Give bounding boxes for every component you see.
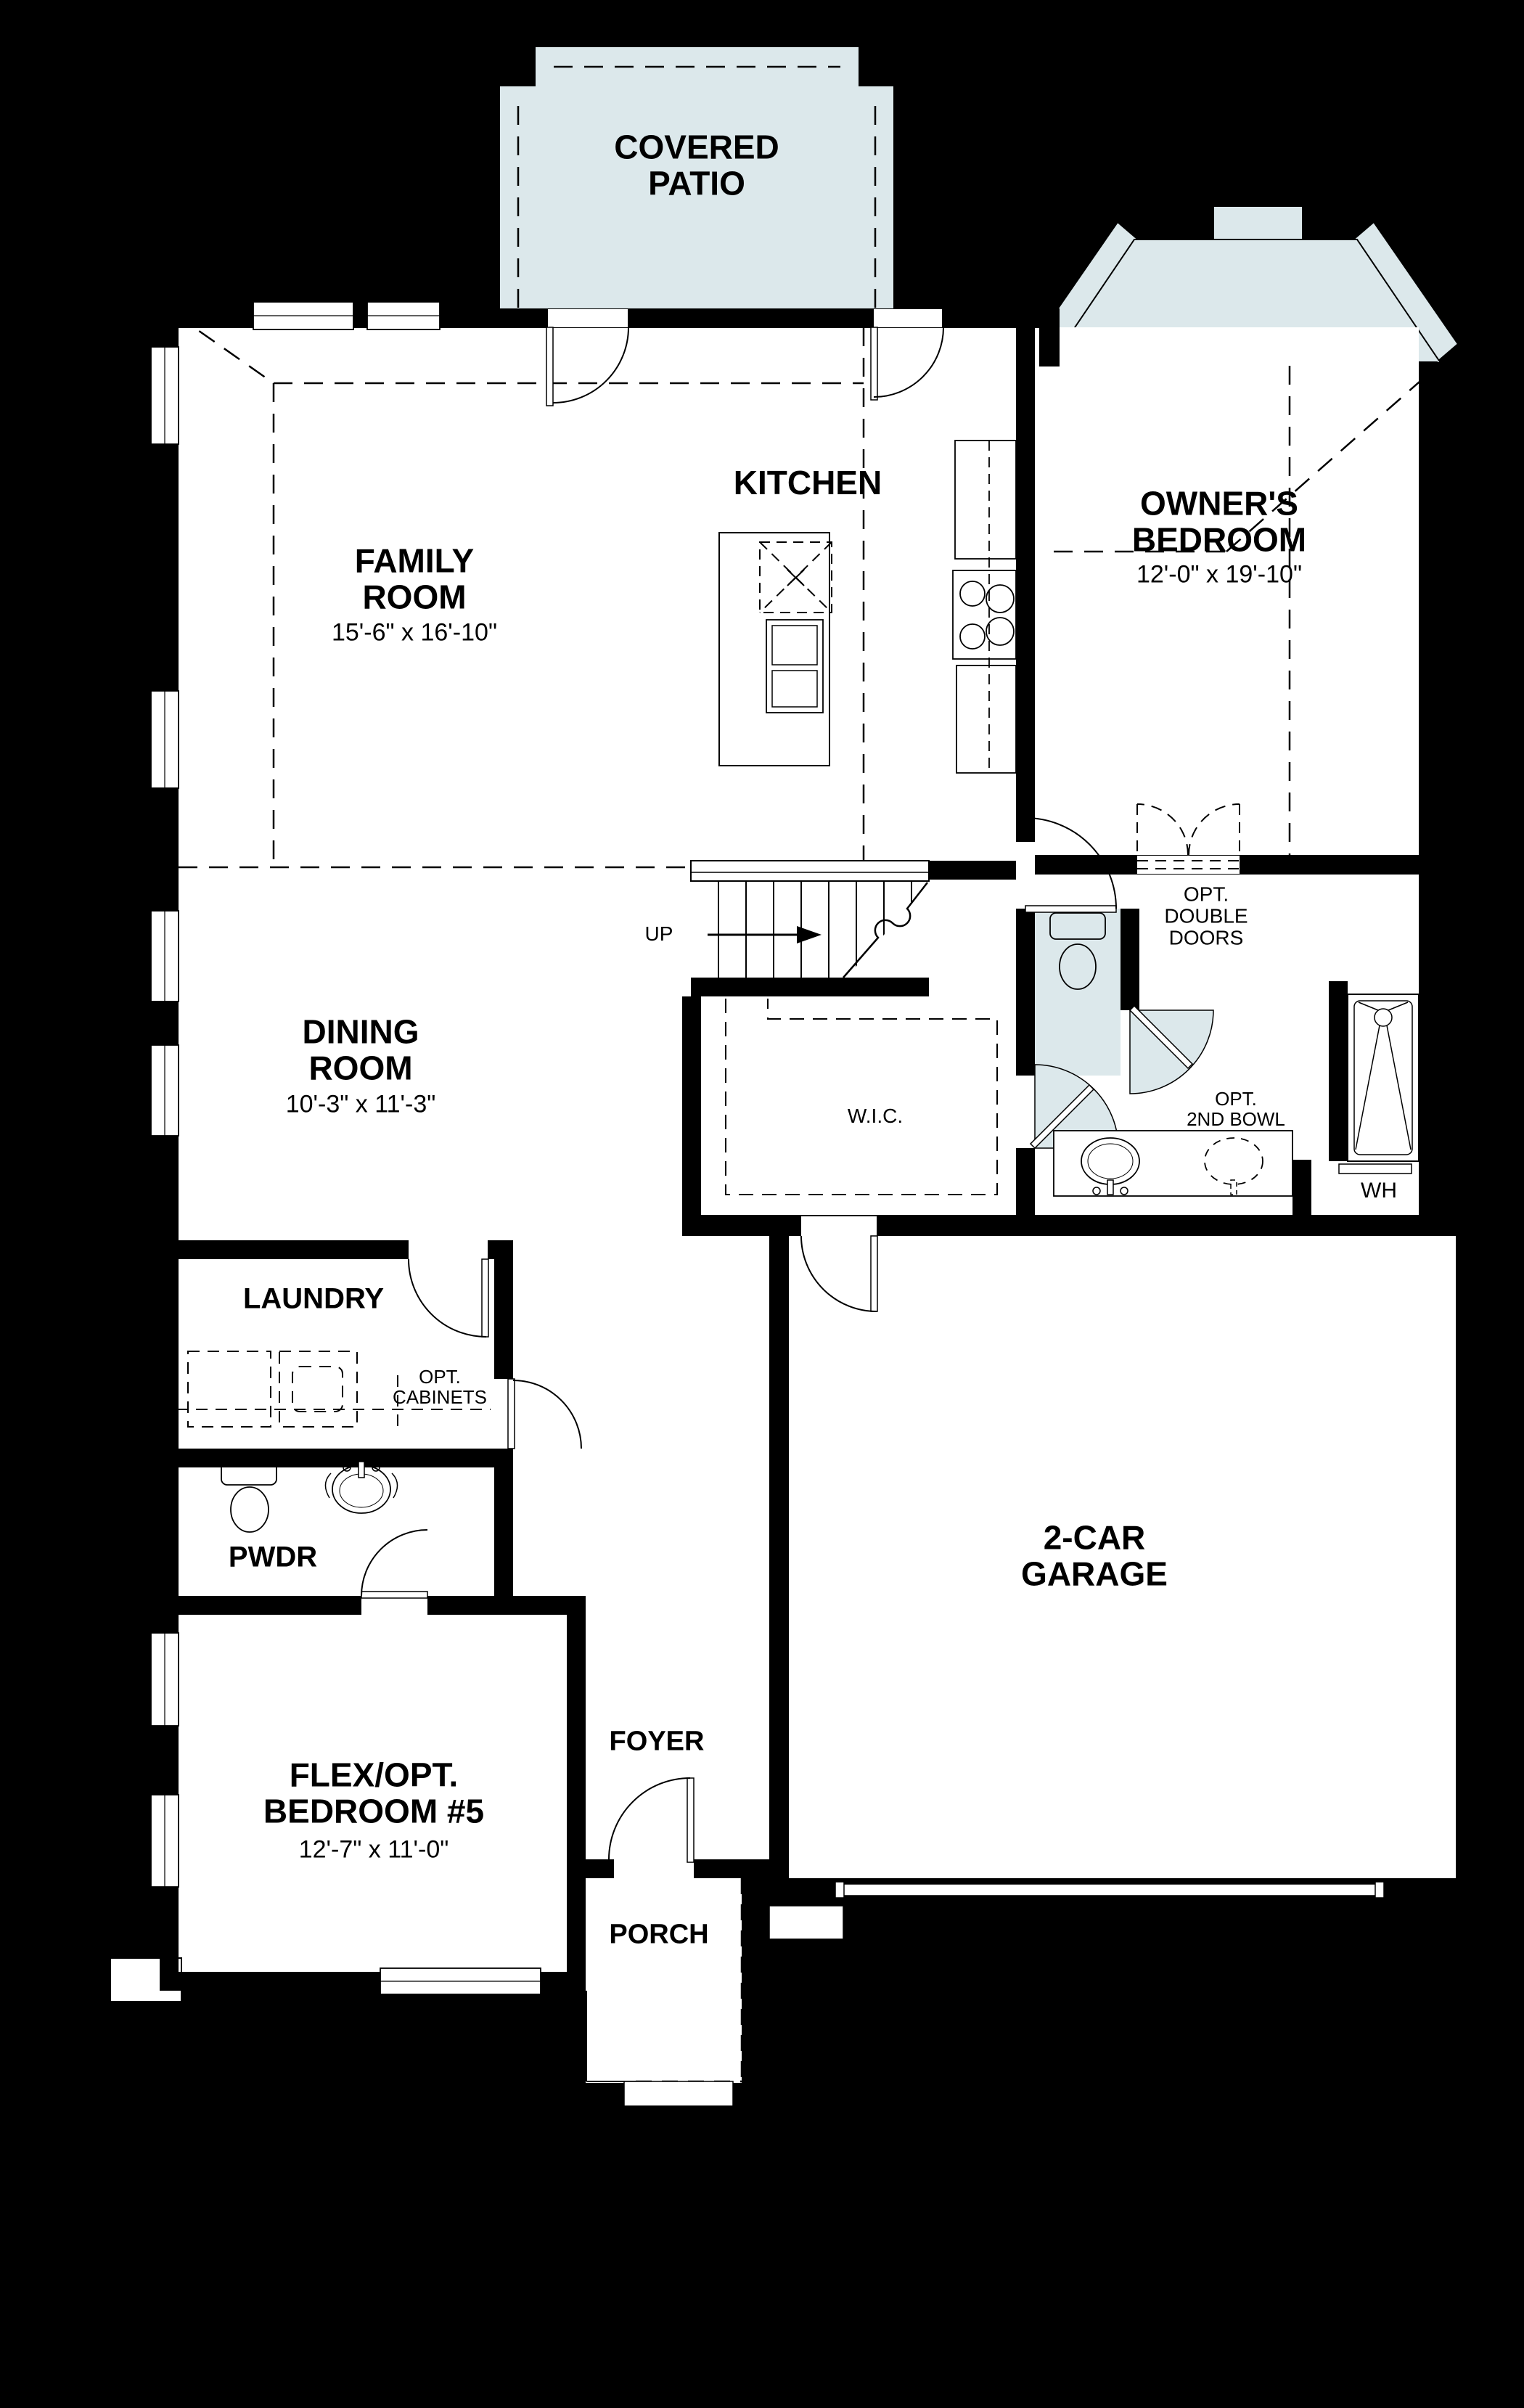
room-label-porch: PORCH <box>609 1920 708 1949</box>
room-label-covered-patio: COVERED PATIO <box>614 129 779 201</box>
opt-2nd-bowl-label: OPT. 2ND BOWL <box>1187 1089 1285 1129</box>
room-dims-owners: 12'-0" x 19'-10" <box>1136 562 1302 589</box>
room-label-owners: OWNER'S BEDROOM <box>1132 486 1306 557</box>
kitchen-island <box>719 533 832 766</box>
kitchen-counter-stove <box>953 441 1016 773</box>
room-dims-flex: 12'-7" x 11'-0" <box>299 1837 449 1864</box>
room-label-pwdr: PWDR <box>229 1541 317 1573</box>
opt-double-doors-label: OPT. DOUBLE DOORS <box>1164 884 1248 950</box>
room-label-laundry: LAUNDRY <box>243 1283 384 1314</box>
room-label-dining: DINING ROOM <box>303 1014 419 1086</box>
water-heater-label: WH <box>1361 1179 1397 1203</box>
floorplan-drawing <box>0 0 1524 2408</box>
room-dims-family: 15'-6" x 16'-10" <box>332 620 497 647</box>
stairs-up-label: UP <box>645 923 673 945</box>
room-dims-dining: 10'-3" x 11'-3" <box>286 1092 436 1118</box>
room-label-garage: 2-CAR GARAGE <box>1021 1520 1168 1592</box>
opt-cabinets-label: OPT. CABINETS <box>393 1367 487 1407</box>
wic-label: W.I.C. <box>848 1105 903 1127</box>
room-label-flex: FLEX/OPT. BEDROOM #5 <box>263 1757 484 1829</box>
room-label-foyer: FOYER <box>610 1727 705 1756</box>
room-label-kitchen: KITCHEN <box>734 465 882 501</box>
toilet-room <box>1035 909 1121 1076</box>
room-label-family: FAMILY ROOM <box>355 543 474 615</box>
floorplan-page: COVERED PATIO KITCHEN FAMILY ROOM 15'-6"… <box>0 0 1524 2408</box>
